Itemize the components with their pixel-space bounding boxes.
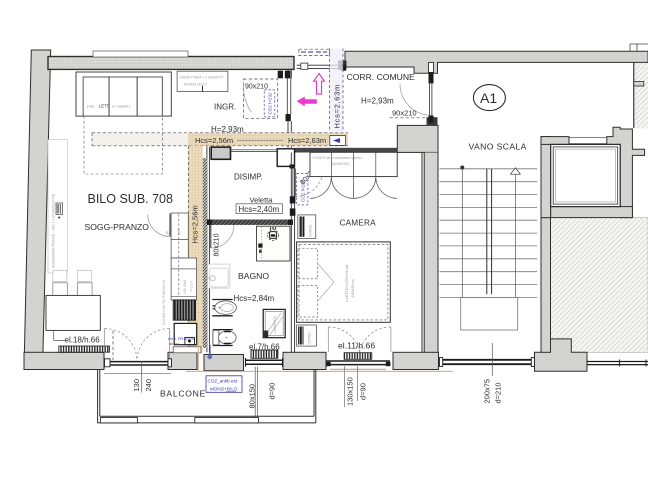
svg-text:n.LETTO l=170+c+t=dz: n.LETTO l=170+c+t=dz: [345, 265, 349, 302]
svg-text:all. sc: all. sc: [169, 341, 179, 346]
svg-text:d=90: d=90: [359, 383, 368, 400]
svg-text:INGR.: INGR.: [214, 102, 236, 111]
svg-text:200x75: 200x75: [483, 379, 492, 404]
svg-text:(ARMADIO): (ARMADIO): [332, 162, 349, 166]
svg-text:(160x190cm): (160x190cm): [351, 279, 355, 298]
svg-text:CUCINA+LAV.+3c FUOCHI h.st: CUCINA+LAV.+3c FUOCHI h.st: [162, 280, 166, 325]
svg-text:BILO SUB. 708: BILO SUB. 708: [88, 192, 174, 206]
svg-text:Hcs=2,84m: Hcs=2,84m: [234, 294, 275, 303]
svg-text:el.18/h.66: el.18/h.66: [65, 335, 101, 344]
svg-text:CO2 l=232: CO2 l=232: [301, 179, 306, 202]
svg-text:80x150: 80x150: [247, 384, 256, 409]
svg-text:CASSETTIERA + 3 CASSETTI: CASSETTIERA + 3 CASSETTI: [180, 76, 224, 80]
svg-text:SOGGIORNO PRANZO + letto x 2 (: SOGGIORNO PRANZO + letto x 2 (DIVANOLETT…: [52, 194, 56, 268]
svg-text:+TL h.4: +TL h.4: [190, 281, 194, 292]
svg-text:Hcs=2,56m: Hcs=2,56m: [191, 205, 200, 243]
svg-text:CORR. COMUNE: CORR. COMUNE: [347, 72, 416, 82]
svg-text:el.11/h.66: el.11/h.66: [338, 340, 375, 350]
svg-text:LAV. 60x3: LAV. 60x3: [183, 280, 187, 294]
svg-text:d=210: d=210: [494, 382, 503, 403]
svg-text:+3 ANTE+att. e cassettiera+pia: +3 ANTE+att. e cassettiera+pianto t: [312, 156, 363, 160]
svg-text:H=2,93m: H=2,93m: [211, 125, 244, 134]
svg-text:CO2 l=232: CO2 l=232: [268, 92, 273, 115]
svg-text:130: 130: [132, 379, 141, 392]
svg-text:Hcs=2,56m: Hcs=2,56m: [195, 136, 233, 145]
svg-text:LAVATRICE: LAVATRICE: [273, 316, 277, 333]
svg-text:Hcs=2,63m: Hcs=2,63m: [333, 84, 342, 128]
svg-text:elett. FR+LV+fr: elett. FR+LV+fr: [168, 336, 195, 341]
svg-text:DISIMP.: DISIMP.: [234, 172, 263, 181]
svg-text:240: 240: [144, 379, 153, 392]
svg-text:A1: A1: [480, 90, 497, 106]
svg-text:(+on: (+on: [87, 105, 94, 109]
svg-text:COZ_antib est: COZ_antib est: [208, 379, 238, 384]
svg-text:H=2,93m: H=2,93m: [361, 96, 394, 105]
svg-text:90x210: 90x210: [245, 84, 268, 91]
svg-text:o= matrim.): o= matrim.): [112, 105, 130, 109]
svg-text:80x210: 80x210: [214, 233, 221, 256]
svg-text:DIVANO LETTO: DIVANO LETTO: [184, 83, 208, 87]
svg-text:130x150: 130x150: [346, 377, 355, 406]
svg-text:BALCONE: BALCONE: [160, 388, 206, 398]
svg-text:Veletta: Veletta: [250, 196, 274, 205]
svg-text:BAGNO: BAGNO: [238, 271, 269, 281]
svg-text:COMOD.: COMOD.: [309, 224, 313, 237]
svg-text:VANO SCALA: VANO SCALA: [469, 142, 527, 152]
svg-text:d=90: d=90: [268, 383, 277, 400]
svg-text:COMOD.: COMOD.: [308, 331, 312, 344]
svg-text:CAMERA: CAMERA: [340, 218, 377, 227]
svg-text:MONO+BILO: MONO+BILO: [210, 386, 238, 391]
svg-text:LETT.: LETT.: [99, 104, 110, 109]
svg-text:Hcs=2,63m: Hcs=2,63m: [288, 136, 326, 145]
svg-text:fr.60: fr.60: [166, 231, 170, 237]
svg-text:SOGG-PRANZO: SOGG-PRANZO: [85, 222, 150, 232]
svg-text:90x210: 90x210: [392, 109, 417, 118]
svg-text:Hcs=2,40m: Hcs=2,40m: [239, 205, 280, 214]
